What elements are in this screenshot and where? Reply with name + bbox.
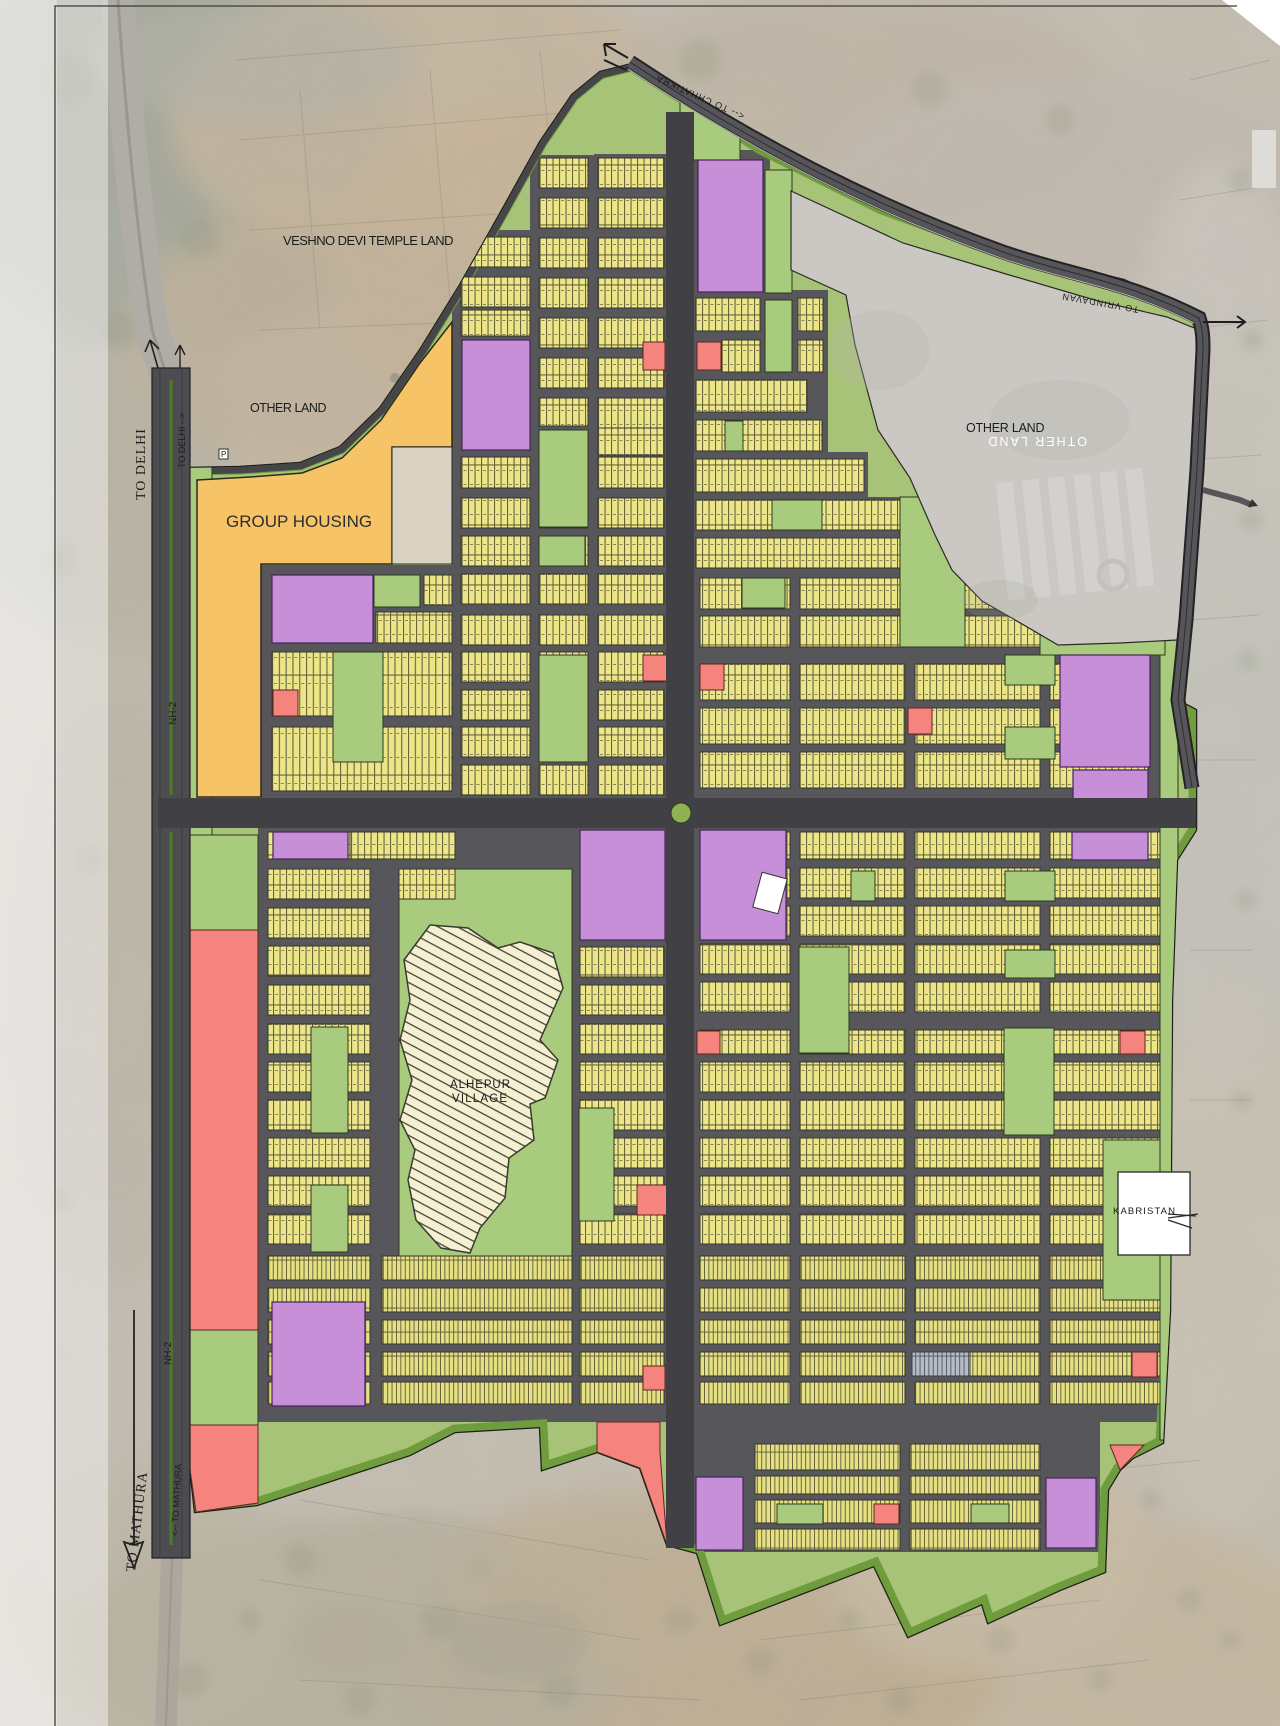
svg-text:NH-2: NH-2: [163, 1341, 174, 1365]
svg-text:TO DELHI: TO DELHI: [134, 428, 149, 500]
svg-text:P: P: [221, 450, 226, 459]
svg-text:TO DELHI -->: TO DELHI -->: [177, 413, 187, 468]
svg-text:OTHER LAND: OTHER LAND: [250, 401, 328, 415]
svg-text:NH-2: NH-2: [168, 701, 179, 725]
svg-text:OTHER LAND: OTHER LAND: [986, 434, 1087, 448]
svg-text:KABRISTAN: KABRISTAN: [1113, 1206, 1175, 1217]
svg-text:VESHNO DEVI TEMPLE LAND: VESHNO DEVI TEMPLE LAND: [283, 233, 455, 248]
svg-text:ALHEPUR: ALHEPUR: [450, 1079, 510, 1091]
svg-text:GROUP HOUSING: GROUP HOUSING: [226, 512, 372, 531]
svg-text:OTHER LAND: OTHER LAND: [966, 421, 1046, 435]
svg-text:VILLAGE: VILLAGE: [452, 1093, 507, 1105]
